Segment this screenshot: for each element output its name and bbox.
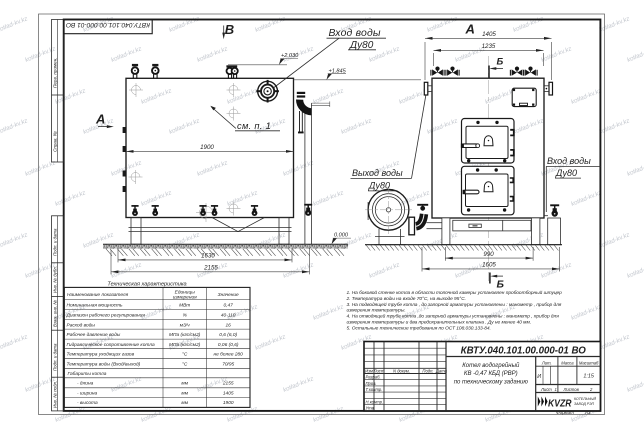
svg-text:по техническому заданию: по техническому заданию	[454, 380, 529, 386]
svg-text:Единицы: Единицы	[175, 289, 196, 295]
svg-text:А: А	[465, 22, 475, 37]
svg-text:Вход воды: Вход воды	[547, 156, 591, 166]
svg-text:м3/ч: м3/ч	[180, 322, 190, 328]
svg-text:KVZR: KVZR	[548, 398, 572, 409]
svg-text:1630: 1630	[201, 253, 215, 260]
svg-text:А: А	[95, 112, 105, 127]
svg-text:Гидравлическое сопротивление к: Гидравлическое сопротивление котла	[67, 342, 155, 348]
svg-text:КВТУ.040.101.00.000-01 ВО: КВТУ.040.101.00.000-01 ВО	[461, 345, 587, 356]
svg-text:измерения температуры и два пр: измерения температуры и два предохраните…	[347, 320, 532, 326]
svg-text:КОТЕЛЬНЫЙ: КОТЕЛЬНЫЙ	[574, 397, 597, 401]
svg-text:0.000: 0.000	[334, 233, 349, 239]
svg-text:И: И	[537, 374, 541, 380]
svg-text:Т.контр.: Т.контр.	[366, 387, 383, 392]
svg-text:Разраб.: Разраб.	[366, 375, 381, 380]
svg-text:Подп.: Подп.	[422, 368, 433, 373]
svg-text:МПа (кгс/см2): МПа (кгс/см2)	[169, 342, 201, 348]
svg-text:Пров.: Пров.	[366, 381, 377, 386]
svg-text:2155: 2155	[222, 381, 234, 387]
svg-text:Справ. №: Справ. №	[52, 131, 57, 152]
svg-text:Рабочее давление воды: Рабочее давление воды	[67, 332, 121, 338]
svg-text:Изм: Изм	[365, 368, 373, 373]
svg-text:%: %	[183, 313, 188, 319]
svg-text:ЗАВОД РЭП: ЗАВОД РЭП	[574, 402, 595, 406]
svg-text:+1.845: +1.845	[329, 68, 347, 74]
svg-text:А3: А3	[584, 410, 591, 415]
svg-text:16: 16	[226, 322, 232, 328]
svg-text:990: 990	[483, 251, 494, 258]
svg-text:Номинальная мощность: Номинальная мощность	[67, 303, 124, 309]
svg-text:+2.030: +2.030	[281, 53, 299, 59]
svg-text:Расход воды: Расход воды	[67, 322, 96, 328]
svg-text:0,6 (6,0): 0,6 (6,0)	[219, 332, 237, 338]
svg-text:Техническая характеристика: Техническая характеристика	[107, 281, 186, 287]
svg-text:Масса: Масса	[561, 360, 574, 365]
svg-text:см. п. 1: см. п. 1	[237, 121, 271, 131]
svg-text:Лит.: Лит.	[541, 360, 552, 365]
svg-text:3. На подводящей трубе котла: 3. На подводящей трубе котла , до запорн…	[347, 301, 562, 308]
svg-text:40-110: 40-110	[221, 313, 236, 319]
svg-text:Б: Б	[497, 279, 505, 291]
svg-text:Б: Б	[497, 57, 504, 68]
svg-text:- высота: - высота	[77, 401, 98, 406]
svg-text:Взам. инв. №: Взам. инв. №	[52, 300, 57, 327]
svg-text:Инв. № дубл.: Инв. № дубл.	[52, 266, 57, 293]
svg-text:Выход воды: Выход воды	[352, 168, 403, 178]
svg-text:В: В	[225, 22, 234, 37]
svg-text:1605: 1605	[482, 262, 496, 269]
svg-text:Габариты котла: Габариты котла	[68, 371, 107, 377]
svg-text:1:15: 1:15	[583, 374, 594, 380]
svg-text:- длина: - длина	[77, 381, 94, 387]
svg-text:1900: 1900	[223, 400, 234, 406]
svg-text:Листов: Листов	[563, 387, 580, 392]
svg-text:Наименование показателя: Наименование показателя	[67, 292, 129, 298]
svg-text:мм: мм	[181, 382, 188, 387]
svg-text:5. Остальные технические треб: 5. Остальные технические требования по О…	[347, 325, 491, 331]
svg-text:1. На боковой стенке котла в: 1. На боковой стенке котла в области топ…	[347, 289, 563, 296]
svg-text:Масштаб: Масштаб	[579, 360, 599, 365]
svg-text:мм: мм	[181, 391, 188, 396]
svg-text:не более 280: не более 280	[214, 352, 244, 358]
svg-text:1235: 1235	[482, 43, 496, 50]
svg-text:Значение: Значение	[218, 292, 239, 298]
svg-text:1405: 1405	[482, 31, 496, 38]
svg-text:Котел водогрейный: Котел водогрейный	[462, 362, 520, 369]
svg-text:МПа (кгс/см2): МПа (кгс/см2)	[169, 332, 201, 338]
svg-text:2. Температура воды на входе: 2. Температура воды на входе 70°С, на вы…	[346, 296, 466, 302]
svg-text:Ду80: Ду80	[349, 40, 374, 51]
svg-text:Формат: Формат	[556, 410, 574, 415]
svg-text:КВТУ.040.101.00.000-01 ВО: КВТУ.040.101.00.000-01 ВО	[66, 21, 150, 28]
svg-text:1900: 1900	[200, 144, 214, 151]
svg-text:- ширина: - ширина	[77, 391, 98, 396]
svg-text:Подп. и дата: Подп. и дата	[52, 228, 57, 256]
svg-text:Лист: Лист	[540, 387, 552, 392]
svg-text:Дата: Дата	[435, 368, 448, 373]
svg-text:4. На отводящей трубе котла ,: 4. На отводящей трубе котла ,до запорной…	[347, 313, 560, 320]
svg-text:70/95: 70/95	[222, 361, 234, 367]
svg-text:Температура уходящих газов: Температура уходящих газов	[67, 352, 135, 358]
svg-text:Н.контр.: Н.контр.	[366, 400, 384, 405]
svg-text:Диапазон рабочего регулировани: Диапазон рабочего регулирования	[66, 313, 146, 319]
svg-text:1405: 1405	[223, 390, 234, 396]
svg-text:0,47: 0,47	[224, 303, 234, 309]
svg-text:Подп. и дата: Подп. и дата	[52, 343, 57, 371]
svg-text:Лист: Лист	[373, 368, 385, 373]
svg-text:Перв. примен.: Перв. примен.	[52, 57, 57, 88]
svg-text:0,06 (0,6): 0,06 (0,6)	[218, 342, 239, 348]
svg-text:1: 1	[555, 387, 557, 392]
svg-text:Инв. № подл.: Инв. № подл.	[52, 381, 57, 408]
svg-text:КВ -0,47 КБД (РВР): КВ -0,47 КБД (РВР)	[464, 371, 518, 377]
svg-text:Ду80: Ду80	[555, 168, 577, 178]
svg-text:°С: °С	[182, 361, 188, 367]
svg-text:измерения температуры.: измерения температуры.	[347, 309, 406, 314]
svg-text:МВт: МВт	[179, 303, 190, 309]
svg-text:Утв.: Утв.	[366, 406, 376, 411]
svg-text:Вход воды: Вход воды	[329, 28, 381, 39]
svg-text:измерения: измерения	[173, 296, 197, 301]
svg-text:N докум.: N докум.	[393, 368, 410, 373]
svg-text:°С: °С	[182, 352, 188, 358]
svg-text:2155: 2155	[203, 264, 218, 271]
svg-text:Ду80: Ду80	[368, 181, 390, 191]
svg-text:Температура воды (Вход/выход): Температура воды (Вход/выход)	[67, 361, 141, 367]
svg-text:мм: мм	[181, 401, 188, 406]
